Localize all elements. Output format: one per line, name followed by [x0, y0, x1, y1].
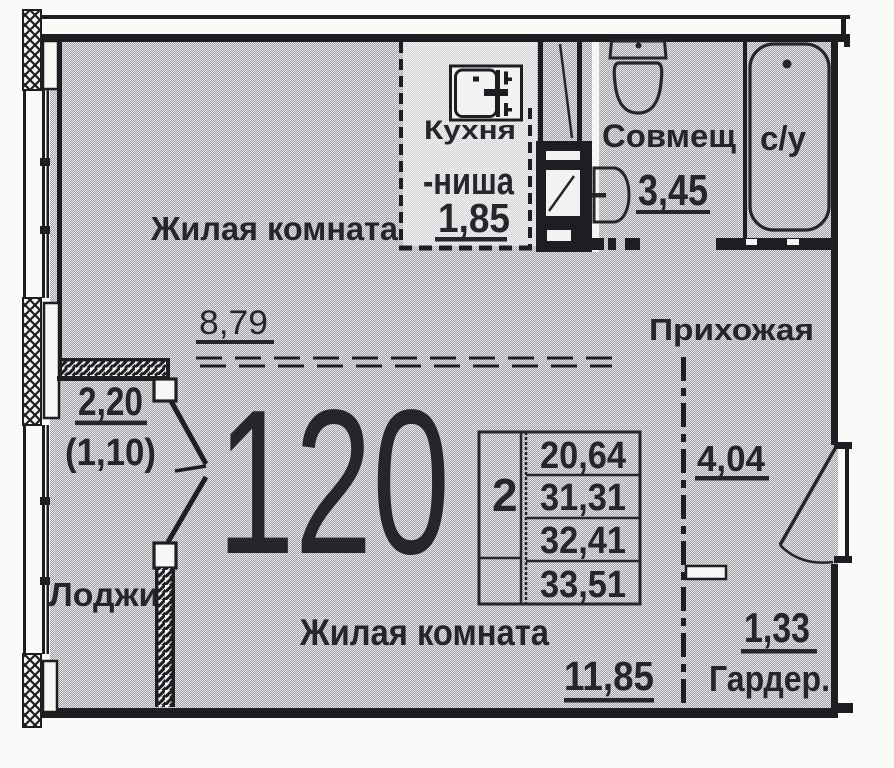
- svg-text:1,33: 1,33: [744, 604, 810, 651]
- svg-text:Гардер.: Гардер.: [709, 658, 830, 699]
- svg-text:11,85: 11,85: [564, 653, 654, 699]
- svg-text:33,51: 33,51: [540, 564, 626, 606]
- svg-text:Жилая комната: Жилая комната: [150, 210, 399, 247]
- svg-text:Жилая комната: Жилая комната: [299, 612, 549, 653]
- svg-text:с/у: с/у: [760, 120, 806, 158]
- svg-text:(1,10): (1,10): [65, 432, 156, 474]
- svg-text:Кухня: Кухня: [424, 115, 516, 145]
- svg-text:3,45: 3,45: [638, 166, 708, 215]
- svg-text:120: 120: [217, 367, 450, 597]
- svg-text:20,64: 20,64: [540, 435, 626, 477]
- svg-text:2: 2: [492, 469, 518, 521]
- svg-text:31,31: 31,31: [540, 477, 626, 519]
- svg-text:4,04: 4,04: [697, 438, 765, 479]
- svg-text:Совмещ: Совмещ: [602, 118, 736, 154]
- svg-text:Прихожая: Прихожая: [649, 312, 814, 347]
- svg-text:2,20: 2,20: [78, 380, 143, 424]
- svg-text:32,41: 32,41: [540, 520, 626, 562]
- svg-text:1,85: 1,85: [438, 195, 510, 241]
- svg-text:8,79: 8,79: [199, 304, 268, 342]
